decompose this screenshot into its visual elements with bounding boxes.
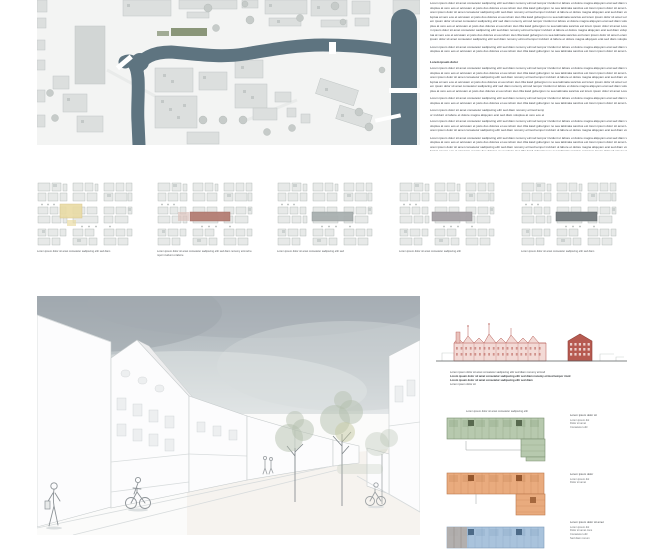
variant-caption: Lorem ipsum dolor sit amet consetetur sa… <box>277 250 373 254</box>
variant-caption: Lorem ipsum dolor sit amet consetetur sa… <box>37 250 133 254</box>
site-variant-diagram: Lorem ipsum dolor sit amet consetetur sa… <box>277 182 373 254</box>
body-paragraph: Lorem ipsum dolor sit amet consetetur sa… <box>430 136 627 152</box>
body-paragraph: Lorem ipsum dolor sit amet consetetur sa… <box>430 1 627 42</box>
floor-plan-mid-orange <box>446 471 546 519</box>
body-paragraph: Lorem ipsum dolor sit amet consetetur sa… <box>430 108 544 117</box>
floor-plan-legend: Lorem ipsum dolor sit ametLorem ipsum do… <box>570 521 628 540</box>
site-plan-map <box>37 0 420 145</box>
legend-title: Lorem ipsum dolor <box>570 473 628 477</box>
floor-plan-legend: Lorem ipsum dolor sitLorem ipsum dolDolo… <box>570 414 628 430</box>
floor-plan-upper-green <box>446 416 546 464</box>
presentation-board: Lorem ipsum dolor sit amet consetetur sa… <box>0 0 660 550</box>
elevation-caption: Lorem ipsum dolor sit amet consetetur sa… <box>450 371 618 387</box>
legend-title: Lorem ipsum dolor sit amet <box>570 521 628 525</box>
variant-caption: Lorem ipsum dolor sit amet consetetur sa… <box>157 250 253 257</box>
legend-title: Lorem ipsum dolor sit <box>570 414 628 418</box>
body-paragraph: Lorem ipsum dolor sit amet consetetur sa… <box>430 45 627 54</box>
variant-caption: Lorem ipsum dolor sit amet consetetur sa… <box>399 250 495 254</box>
body-paragraph: Lorem ipsum dolor sit amet consetetur sa… <box>430 96 627 105</box>
description-text-column: Lorem ipsum dolor sit amet consetetur sa… <box>430 1 627 151</box>
body-paragraph: Lorem ipsum dolor sit amet consetetur sa… <box>430 66 627 93</box>
variant-figure-ground-map <box>521 182 617 246</box>
legend-row: Dolor sit amet <box>570 481 602 485</box>
context-right-outline <box>600 354 624 361</box>
masts <box>468 324 511 336</box>
site-variant-diagram: Lorem ipsum dolor sit amet consetetur sa… <box>37 182 133 254</box>
site-variant-diagram: Lorem ipsum dolor sit amet consetetur sa… <box>521 182 617 254</box>
floor-plan-ground-blue <box>446 525 546 550</box>
floor-plan-legend: Lorem ipsum dolorLorem ipsum dolDolor si… <box>570 473 628 485</box>
variant-figure-ground-map <box>37 182 133 246</box>
variant-caption: Lorem ipsum dolor sit amet consetetur sa… <box>521 250 617 254</box>
elevation-small-building <box>568 334 592 361</box>
elevation-main-row <box>454 323 546 361</box>
street-perspective-rendering <box>37 296 420 535</box>
floor-plan-caption: Lorem ipsum dolor sit amet consetetur sa… <box>466 410 578 413</box>
variant-figure-ground-map <box>399 182 495 246</box>
body-paragraph: Lorem ipsum dolor sit amet consetetur sa… <box>430 119 627 133</box>
floor-plan-column: Lorem ipsum dolor sit amet consetetur sa… <box>446 408 630 550</box>
paragraph-heading: Lorem ipsum dolor <box>430 60 505 65</box>
variant-figure-ground-map <box>277 182 373 246</box>
legend-row: Consetetur elitr <box>570 426 608 430</box>
variant-figure-ground-map <box>157 182 253 246</box>
street-elevation-drawing <box>434 322 630 368</box>
legend-row: Sed diam nonum <box>570 537 605 541</box>
site-variant-diagram: Lorem ipsum dolor sit amet consetetur sa… <box>399 182 495 254</box>
site-variant-diagrams: Lorem ipsum dolor sit amet consetetur sa… <box>37 182 631 266</box>
elevation-caption-line: Lorem ipsum dolor sit <box>450 383 517 387</box>
site-variant-diagram: Lorem ipsum dolor sit amet consetetur sa… <box>157 182 253 257</box>
context-building-outline <box>442 353 454 361</box>
